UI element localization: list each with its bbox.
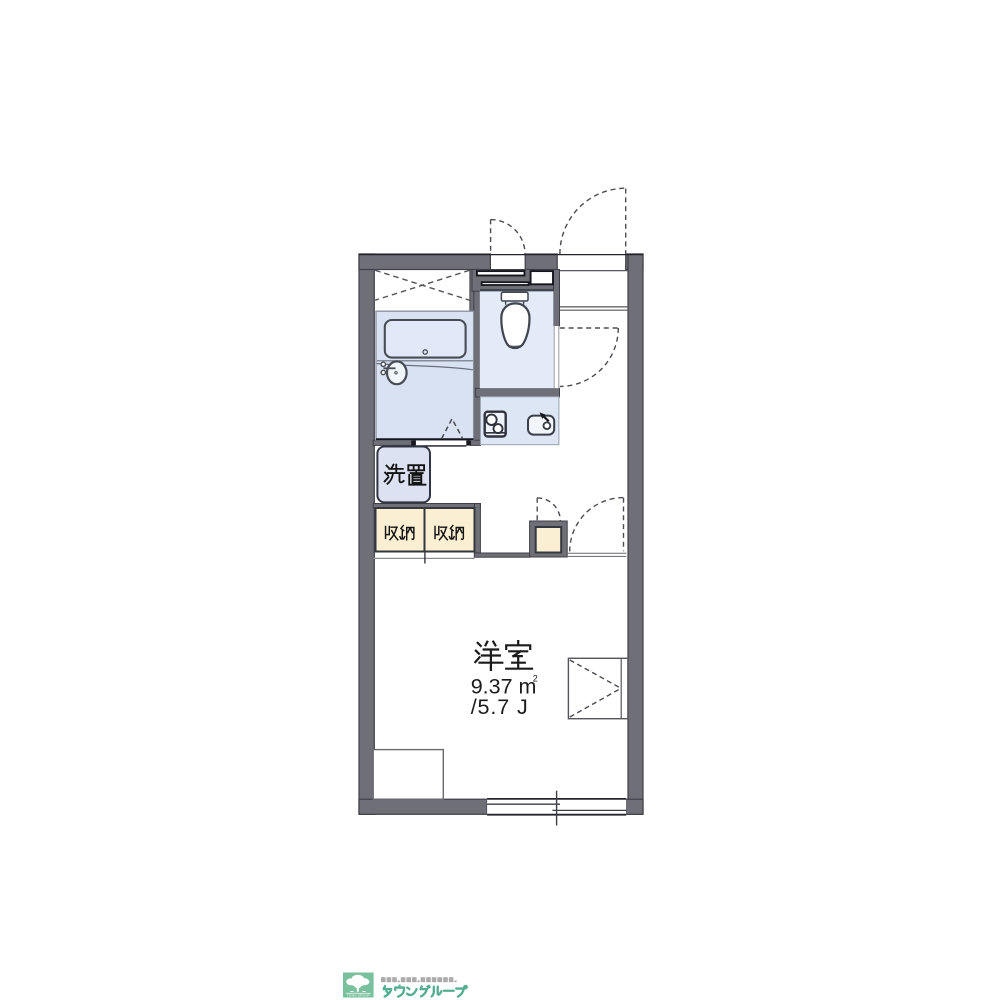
svg-text:TOWN GROUP: TOWN GROUP: [347, 993, 370, 997]
svg-text:/5.7 J: /5.7 J: [471, 695, 529, 719]
svg-text:2: 2: [533, 673, 538, 683]
